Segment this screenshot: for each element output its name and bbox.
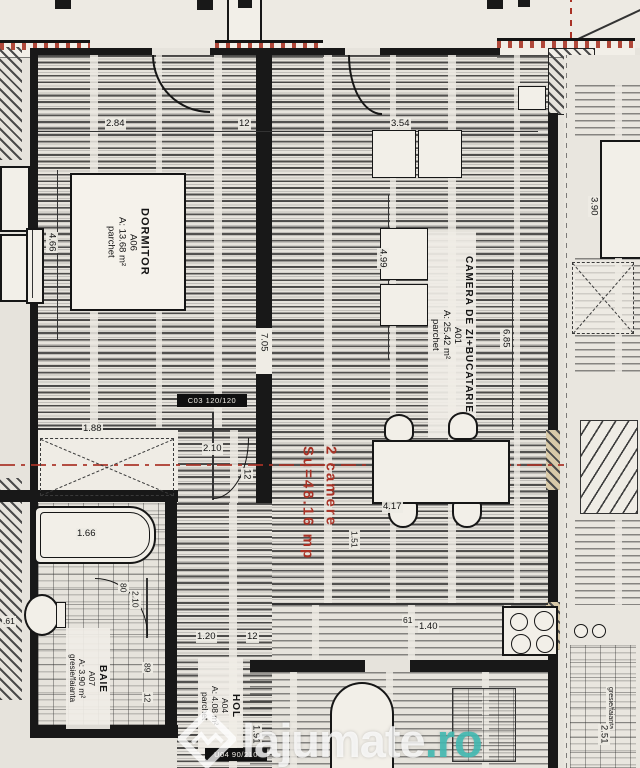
wall-left [30,48,38,228]
watermark: lajumate.ro [178,698,640,768]
dim-6.85: 6.85 [500,328,512,349]
kitchen-unit [380,284,428,326]
dim-12: 12 [241,468,253,481]
top-tick [518,0,530,7]
living-finish: parchet [430,235,441,435]
bathroom-code: A07 [87,631,97,726]
dim-line-left [57,170,58,340]
dim-3.54: 3.54 [390,118,411,130]
living-label: CAMERA DE ZI+BUCATARIE A01 A: 25.42 m² p… [428,232,476,438]
top-tick [487,0,503,9]
bedroom-window [26,228,44,304]
bedroom-label: DORMITOR A06 A: 13.68 m² parchet [104,205,153,279]
wall-right [548,113,558,430]
bedroom-name: DORMITOR [139,208,151,276]
wall-bath-hall [165,502,177,738]
burner [511,634,531,654]
neighbor-label-box [600,140,640,259]
living-code: A01 [452,235,463,435]
dining-table [372,440,510,504]
neighbor-dashed-box [572,262,634,334]
neighbor-window-box [0,166,30,232]
kitchen-cabinet [372,130,416,178]
dim-4.66: 4.66 [46,232,58,253]
neighbor-stairs [580,420,638,514]
neighbor-room [575,85,640,140]
dim-61: 61 [402,615,413,626]
bedroom-label-box: DORMITOR A06 A: 13.68 m² parchet [70,173,186,311]
neighbor-sink [574,624,588,638]
window-tag: C03 120/120 [177,394,247,407]
watermark-text: lajumate.ro [242,713,482,768]
summary-area: Su=48.16 mp [296,446,319,616]
right-edge-fixture-box [518,86,546,110]
bedroom-area: A: 13.68 m² [117,208,128,276]
living-area: A: 25.42 m² [441,235,452,435]
wall-top [380,48,500,55]
wall-right-pier [546,430,560,490]
bedroom-code: A06 [128,208,139,276]
watermark-name: lajumate [242,714,425,767]
dim-1.66: 1.66 [76,528,97,540]
dim-4.99: 4.99 [377,248,389,269]
bathroom-label: BAIE A07 A: 3.90 m² gresie/faianta [66,628,110,729]
stove [502,606,558,656]
dim-1.40: 1.40 [418,621,439,633]
burner [534,611,554,631]
bedroom-finish: parchet [106,208,117,276]
bathroom-finish: gresie/faianta [68,631,77,726]
dim-3.90: 3.90 [588,196,600,217]
window-tag-text: C03 120/120 [188,397,236,405]
top-tick [238,0,252,8]
dashed-party-line [566,55,567,768]
dim-4.17: 4.17 [382,501,403,513]
dim-7.05: 7.05 [258,332,270,353]
chair [448,412,478,440]
bedroom-window-mullion [32,230,33,298]
neighbor-sink [592,624,606,638]
wall-top [227,48,345,55]
dim-2.84: 2.84 [105,118,126,130]
top-tick [197,0,213,10]
dim-12: 12 [238,118,251,130]
bathroom-name: BAIE [97,631,108,726]
party-wall-hatch-bottomleft [0,478,22,700]
neighbor-room [575,520,640,605]
lajumate-logo-icon [178,710,236,768]
wall-left [30,300,38,490]
bathroom-area: A: 3.90 m² [77,631,87,726]
dim-12: 12 [246,631,259,643]
dim-80: 80 [118,582,129,593]
toilet [24,594,60,636]
floorplan-scan: 2 camere Su=48.16 mp DORMITOR A06 A: 13.… [0,0,640,768]
dim-2.10: 2.10 [130,590,141,609]
top-tick [55,0,71,9]
dim-1.51: 1.51 [349,530,360,549]
wall-right [548,490,558,602]
wall-central [256,55,272,503]
kitchen-cabinet [418,130,462,178]
dim-2.10: 2.10 [202,443,223,455]
wall-top [210,48,227,55]
burner [536,635,554,653]
chair [384,414,414,442]
dim-.61: .61 [2,616,16,627]
burner [510,613,528,631]
wall-top [30,48,152,55]
dim-89: 89 [142,662,153,673]
dim-line-right [512,270,513,430]
wardrobe-dashed-box [40,438,174,496]
dim-1.88: 1.88 [82,423,103,435]
dim-12: 12 [142,692,153,703]
living-name: CAMERA DE ZI+BUCATARIE [463,235,474,435]
summary-type: 2 camere [319,446,342,616]
wall-dressing-top [38,428,256,430]
dim-line-top [38,131,538,132]
watermark-tld: .ro [425,714,482,767]
wall-hall-bottom [250,660,365,672]
party-wall-hatch-topleft [0,47,22,160]
dim-1.20: 1.20 [196,631,217,643]
apartment-summary: 2 camere Su=48.16 mp [296,446,343,616]
toilet-tank [56,602,66,628]
wall-hall-bottom [410,660,552,672]
